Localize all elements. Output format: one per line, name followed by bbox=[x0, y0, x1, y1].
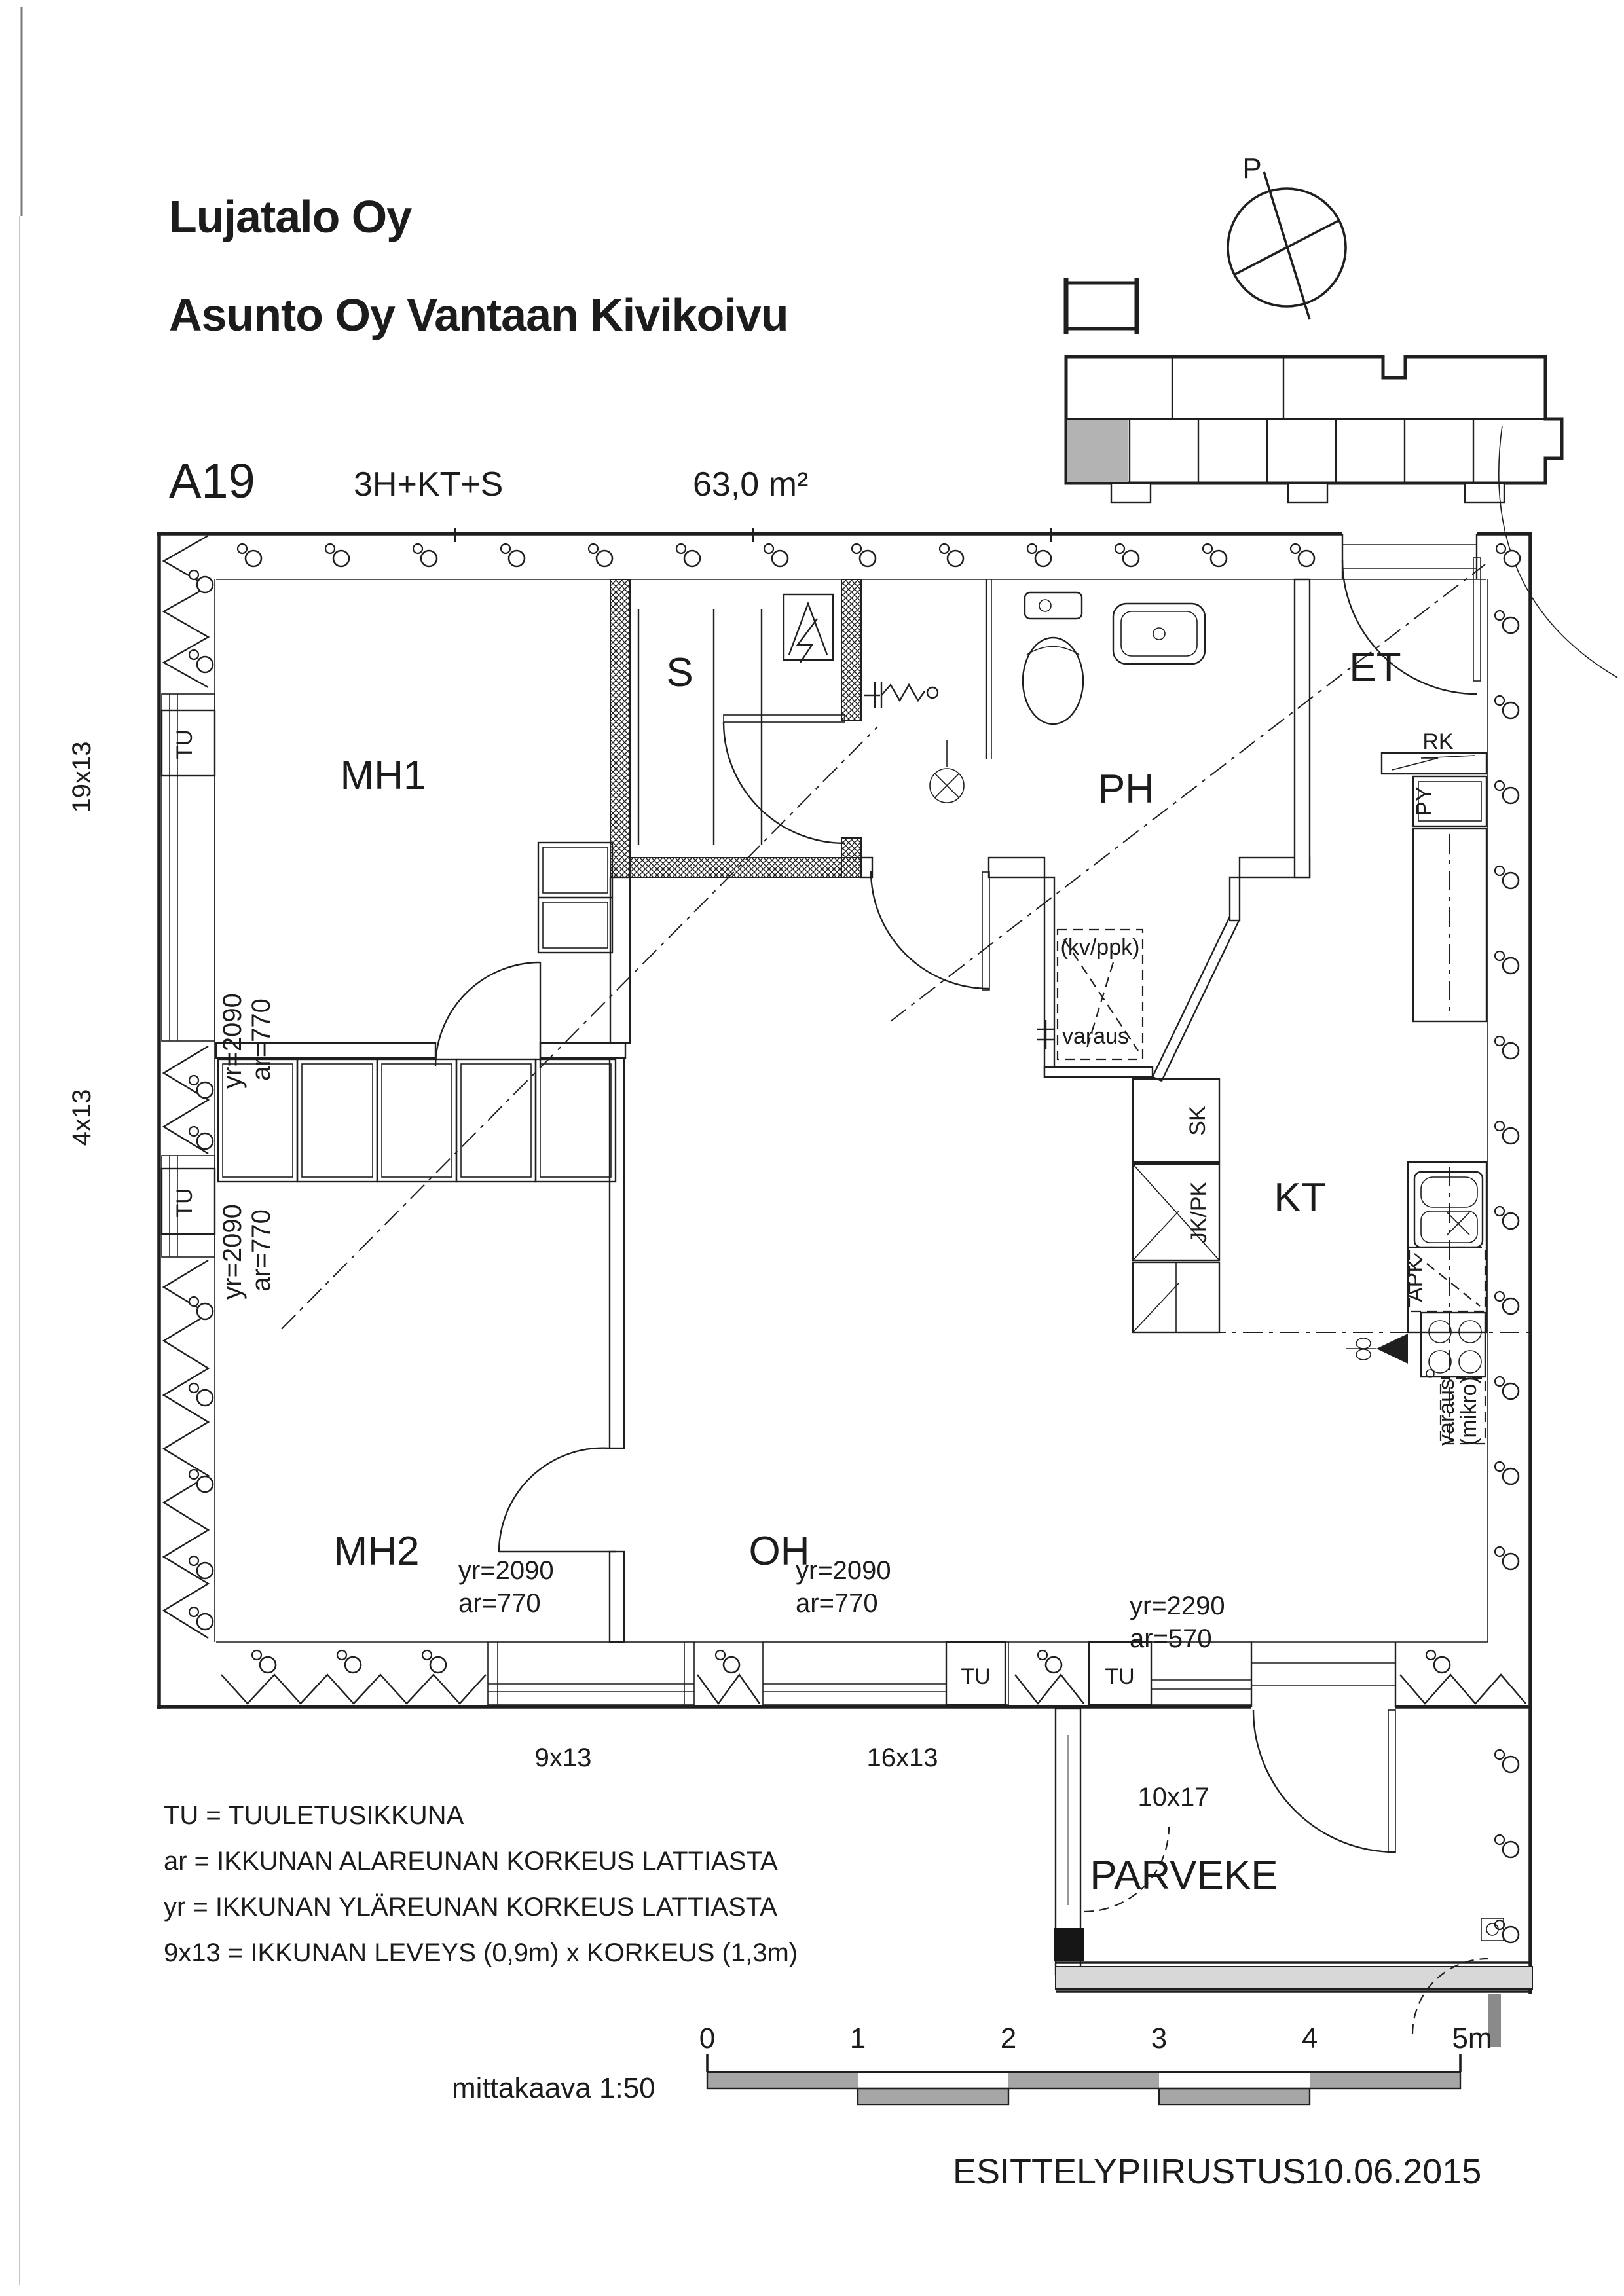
toilet-icon bbox=[1023, 592, 1083, 724]
scale-bar: mittakaava 1:50 0 1 2 3 4 5m bbox=[452, 2022, 1492, 2105]
scale-tick: 3 bbox=[1151, 2022, 1167, 2054]
legend-line-4: 9x13 = IKKUNAN LEVEYS (0,9m) x KORKEUS (… bbox=[164, 1939, 798, 1967]
floor-plan-drawing: Lujatalo Oy Asunto Oy Vantaan Kivikoivu … bbox=[0, 0, 1624, 2296]
tu-marker: TU bbox=[172, 729, 197, 759]
legend-line-3: yr = IKKUNAN YLÄREUNAN KORKEUS LATTIASTA bbox=[164, 1893, 777, 1922]
kitchen-counter: APK (mikro) varaus bbox=[1403, 1162, 1486, 1446]
scale-tick: 2 bbox=[1001, 2022, 1016, 2054]
rk-label: RK bbox=[1422, 729, 1454, 754]
ar-annotation: ar=570 bbox=[1130, 1624, 1212, 1653]
yr-annotation: yr=2090 bbox=[796, 1556, 891, 1585]
sauna-benches bbox=[638, 609, 762, 845]
apk-label: APK bbox=[1403, 1258, 1428, 1302]
window-size-10x17: 10x17 bbox=[1138, 1783, 1209, 1812]
py-label: PY bbox=[1412, 786, 1437, 816]
tu-marker: TU bbox=[961, 1664, 990, 1689]
kv-ppk-label: (kv/ppk) bbox=[1061, 935, 1140, 960]
floor-drain-icon bbox=[930, 740, 964, 803]
scale-tick: 1 bbox=[850, 2022, 866, 2054]
title-block: Lujatalo Oy Asunto Oy Vantaan Kivikoivu … bbox=[169, 191, 808, 571]
washbasin-icon bbox=[1113, 604, 1205, 664]
footer: ESITTELYPIIRUSTUS 10.06.2015 bbox=[953, 2152, 1481, 2191]
project-name: Asunto Oy Vantaan Kivikoivu bbox=[169, 289, 788, 340]
room-label-mh2: MH2 bbox=[334, 1529, 420, 1574]
apartment-area: 63,0 m² bbox=[693, 465, 808, 503]
yr-annotation: yr=2090 bbox=[218, 993, 247, 1089]
legend-line-2: ar = IKKUNAN ALAREUNAN KORKEUS LATTIASTA bbox=[164, 1847, 778, 1876]
hall-closet bbox=[1413, 829, 1486, 1021]
window-size-16x13: 16x13 bbox=[867, 1743, 938, 1772]
ar-annotation: ar=770 bbox=[458, 1589, 541, 1618]
window-bottom-16x13: TU bbox=[763, 1642, 1008, 1705]
room-labels: MH1 S PH ET KT OH MH2 PARVEKE bbox=[334, 645, 1401, 1898]
sk-label: SK bbox=[1185, 1106, 1210, 1136]
apartment-id: A19 bbox=[169, 454, 255, 508]
electrical-cabinet: RK bbox=[1382, 729, 1486, 774]
company-name: Lujatalo Oy bbox=[169, 191, 412, 242]
legend: TU = TUULETUSIKKUNA ar = IKKUNAN ALAREUN… bbox=[164, 1801, 798, 1967]
kitchen-cabinets: SK JK/PK bbox=[1133, 1079, 1219, 1332]
legend-line-1: TU = TUULETUSIKKUNA bbox=[164, 1801, 464, 1830]
sink-icon bbox=[1414, 1172, 1483, 1247]
room-label-et: ET bbox=[1349, 645, 1401, 690]
yr-annotation: yr=2090 bbox=[458, 1556, 554, 1585]
balcony-door bbox=[1251, 1642, 1395, 1853]
document-type: ESITTELYPIIRUSTUS bbox=[953, 2152, 1306, 2191]
shower-icon bbox=[864, 682, 938, 708]
scale-tick: 0 bbox=[699, 2022, 715, 2054]
window-size-4x13: 4x13 bbox=[67, 1089, 96, 1146]
north-arrow-icon: P bbox=[1228, 153, 1346, 319]
wardrobe-mh1 bbox=[538, 843, 612, 953]
window-size-19x13: 19x13 bbox=[67, 742, 96, 813]
scale-end-label: 5m bbox=[1452, 2022, 1492, 2054]
room-label-kt: KT bbox=[1274, 1175, 1325, 1220]
extract-fan-icon bbox=[1346, 1334, 1408, 1364]
scan-edge-artifact bbox=[20, 7, 22, 2285]
ar-annotation: ar=770 bbox=[247, 998, 276, 1081]
yr-annotation: yr=2090 bbox=[218, 1204, 247, 1300]
scale-label: mittakaava 1:50 bbox=[452, 2072, 655, 2104]
yr-annotation: yr=2290 bbox=[1130, 1592, 1225, 1620]
apartment-type: 3H+KT+S bbox=[354, 465, 503, 503]
window-left-19x13: TU bbox=[162, 694, 215, 1041]
wardrobe-row bbox=[218, 1059, 616, 1182]
section-lines bbox=[282, 564, 1530, 1332]
north-label: P bbox=[1242, 153, 1261, 185]
window-bottom-9x13 bbox=[488, 1642, 694, 1705]
ar-annotation: ar=770 bbox=[247, 1209, 276, 1292]
room-label-mh1: MH1 bbox=[341, 753, 426, 798]
key-plan-apartment-highlight bbox=[1067, 420, 1128, 482]
tu-marker: TU bbox=[172, 1188, 197, 1217]
mikro-label: (mikro) bbox=[1456, 1376, 1481, 1446]
scale-tick: 4 bbox=[1302, 2022, 1318, 2054]
jk-pk-label: JK/PK bbox=[1187, 1181, 1211, 1243]
window-size-9x13: 9x13 bbox=[535, 1743, 592, 1772]
key-plan bbox=[1066, 278, 1562, 503]
tu-marker: TU bbox=[1105, 1664, 1134, 1689]
varaus-label: varaus bbox=[1062, 1024, 1129, 1049]
room-label-sauna: S bbox=[666, 650, 693, 695]
room-label-parveke: PARVEKE bbox=[1090, 1853, 1278, 1898]
faucet-icon bbox=[1447, 1212, 1469, 1235]
exterior-walls bbox=[157, 528, 1532, 1994]
room-label-ph: PH bbox=[1098, 767, 1154, 812]
document-date: 10.06.2015 bbox=[1304, 2152, 1481, 2191]
ar-annotation: ar=770 bbox=[796, 1589, 878, 1618]
interior-walls bbox=[216, 579, 1310, 1642]
window-left-4x13: TU bbox=[162, 1156, 215, 1257]
sauna-stove-icon bbox=[784, 594, 833, 663]
laundry-cabinet: PY bbox=[1412, 776, 1486, 826]
varaus-kt-label: varaus bbox=[1434, 1379, 1459, 1446]
